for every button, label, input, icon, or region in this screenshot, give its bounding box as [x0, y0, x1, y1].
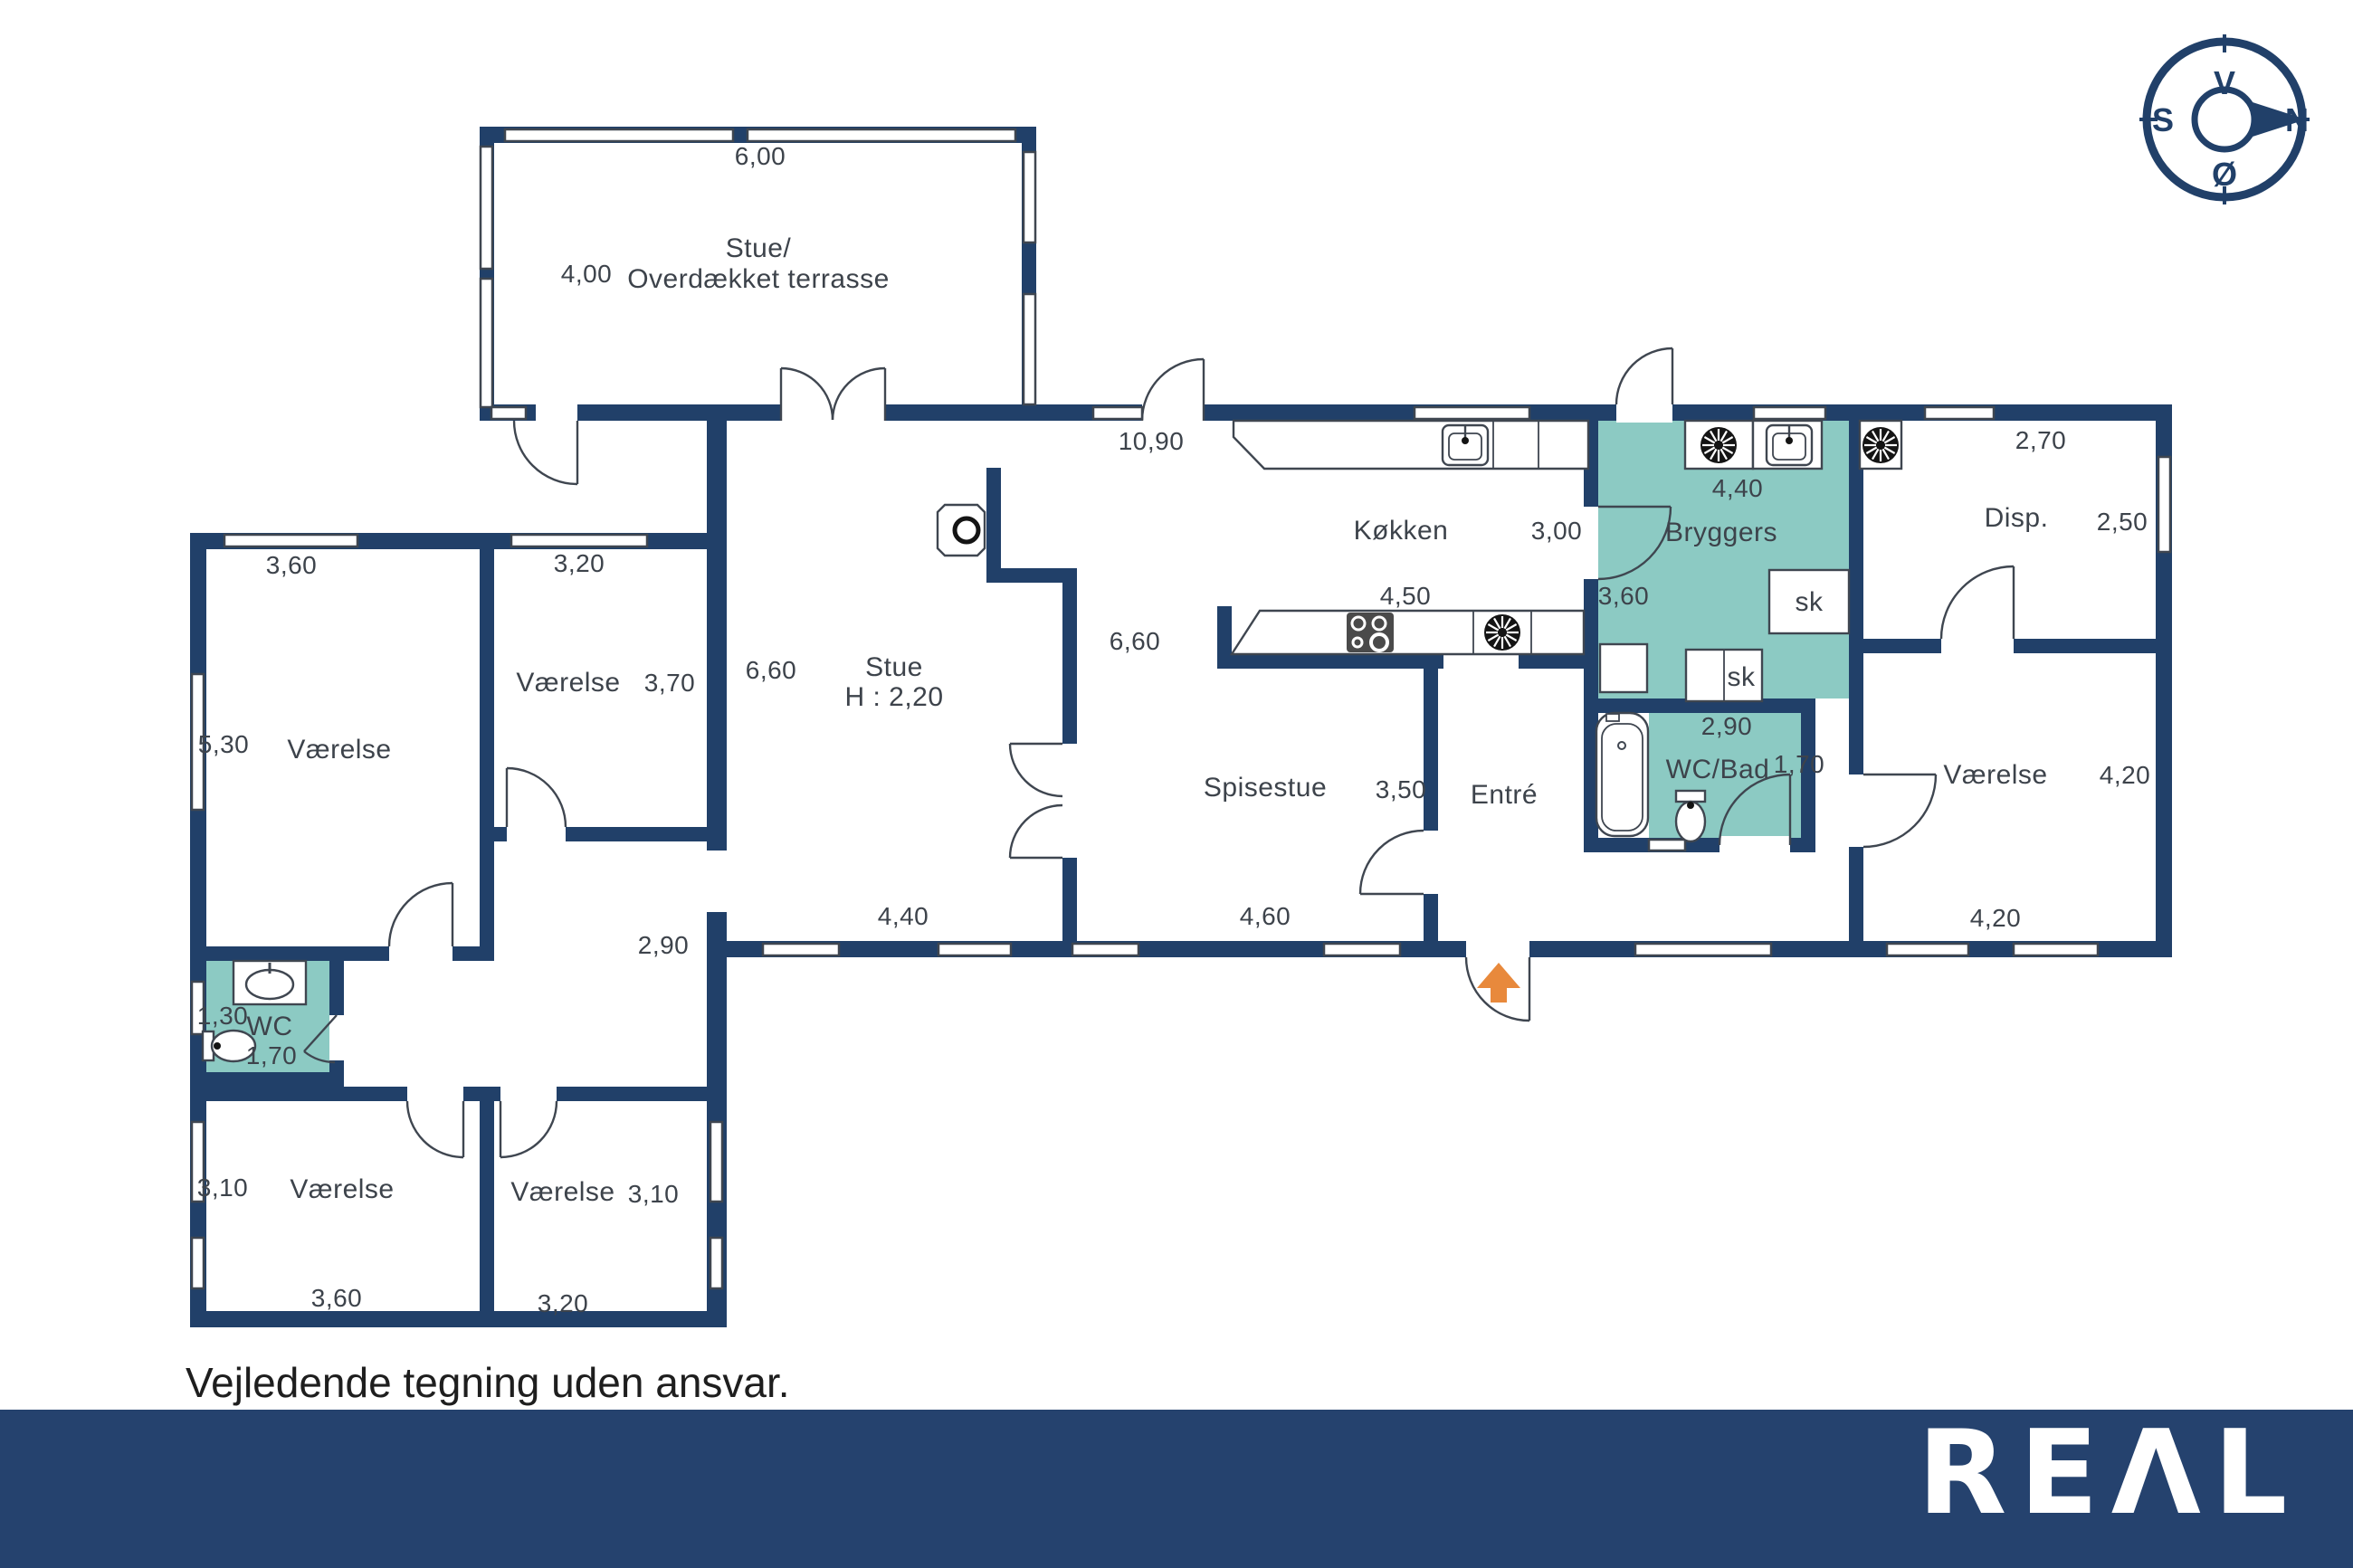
dimension-label: 2,90	[638, 931, 690, 959]
dimension-label: 3,10	[628, 1180, 680, 1208]
kitchen-counter	[1234, 421, 1588, 469]
room-label: sk	[1728, 662, 1757, 692]
washer-icon	[1600, 644, 1647, 692]
dimension-label: 3,50	[1376, 775, 1427, 803]
room-label: Entré	[1471, 780, 1538, 810]
dimension-label: 1,30	[197, 1002, 249, 1030]
kitchen-sink-icon	[1443, 425, 1488, 465]
footer: REΛL	[0, 1406, 2353, 1568]
extractor-fan-icon	[1484, 614, 1520, 651]
dimension-label: 2,70	[2015, 426, 2067, 454]
room-label: Værelse	[516, 668, 620, 698]
wc-sink-icon	[233, 961, 306, 1004]
stove-icon	[1347, 613, 1394, 652]
bathtub-icon	[1596, 713, 1648, 836]
dimension-label: 10,90	[1119, 427, 1185, 455]
compass-v: V	[2214, 64, 2235, 101]
toilet-icon-wc-bad	[1676, 791, 1705, 841]
disclaimer-text: Vejledende tegning uden ansvar.	[186, 1359, 790, 1406]
dimension-label: 4,50	[1380, 582, 1432, 610]
bryggers-fan-icon	[1700, 427, 1737, 463]
dimension-label: 5,30	[198, 730, 250, 758]
dimension-label: 3,20	[554, 549, 605, 577]
room-label: WC	[247, 1012, 293, 1041]
room-label: sk	[1796, 587, 1824, 617]
dimension-label: 1,70	[246, 1041, 298, 1069]
room-label: WC/Bad	[1666, 755, 1770, 784]
dimension-label: 4,20	[2100, 761, 2151, 789]
room-label: Spisestue	[1204, 773, 1327, 803]
disp-fan-icon	[1862, 427, 1899, 463]
compass-s: S	[2152, 101, 2174, 138]
dimension-label: 6,60	[746, 656, 797, 684]
dimension-label: 3,10	[197, 1174, 249, 1202]
dimension-label: 4,00	[561, 260, 613, 288]
dimension-label: 3,70	[644, 669, 696, 697]
dimension-label: 4,20	[1970, 904, 2022, 932]
room-label: Værelse	[510, 1177, 614, 1207]
room-label: Stue/	[726, 233, 792, 263]
room-label: Værelse	[1943, 760, 2047, 790]
dimension-label: 3,20	[538, 1289, 589, 1317]
room-label: Overdækket terrasse	[627, 264, 890, 294]
dimension-label: 3,60	[311, 1284, 363, 1312]
room-label: Stue	[865, 652, 923, 682]
dimension-label: 1,70	[1774, 750, 1825, 778]
dimension-label: 4,40	[878, 902, 929, 930]
room-label: Køkken	[1354, 516, 1449, 546]
floor-plan-page: Stue/Overdækket terrasseVærelseVærelseSt…	[0, 0, 2353, 1568]
compass-oe: Ø	[2212, 156, 2237, 193]
room-label: Disp.	[1985, 503, 2049, 533]
room-label: Værelse	[287, 735, 391, 765]
room-label: Værelse	[290, 1174, 394, 1204]
floor-plan-canvas: Stue/Overdækket terrasseVærelseVærelseSt…	[0, 0, 2353, 1568]
room-label: H : 2,20	[844, 682, 943, 712]
dimension-label: 3,60	[266, 551, 318, 579]
dimension-label: 6,00	[735, 142, 786, 170]
room-label: Bryggers	[1665, 518, 1777, 547]
dimension-label: 6,60	[1110, 627, 1161, 655]
dimension-label: 2,90	[1701, 712, 1753, 740]
dimension-label: 2,50	[2097, 508, 2148, 536]
dimension-label: 4,60	[1240, 902, 1291, 930]
dimension-label: 4,40	[1712, 474, 1764, 502]
real-logo: REΛL	[1918, 1406, 2301, 1541]
bryggers-sink-icon	[1767, 425, 1812, 465]
compass-n: N	[2285, 101, 2309, 138]
dimension-label: 3,00	[1531, 517, 1583, 545]
dimension-label: 3,60	[1598, 582, 1650, 610]
wood-stove-icon	[938, 505, 985, 556]
